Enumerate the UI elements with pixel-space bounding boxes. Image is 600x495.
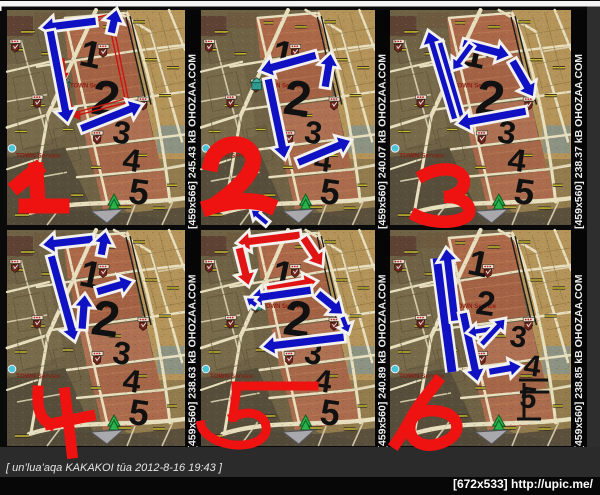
svg-text:[459x560] 238.85 kB OHOZAA.COM: [459x560] 238.85 kB OHOZAA.COM xyxy=(573,274,585,449)
svg-text:[459x560] 238.37 kB OHOZAA.COM: [459x560] 238.37 kB OHOZAA.COM xyxy=(573,54,585,229)
svg-text:[459x566] 245.43 kB OHOZAA.COM: [459x566] 245.43 kB OHOZAA.COM xyxy=(186,54,198,229)
svg-text:[459x560] 240.07 kB OHOZAA.COM: [459x560] 240.07 kB OHOZAA.COM xyxy=(376,54,388,229)
svg-text:[ un’lua’aqa KAKAKOI tūa 2012-: [ un’lua’aqa KAKAKOI tūa 2012-8-16 19:43… xyxy=(5,462,223,474)
svg-text:[672x533] http://upic.me/: [672x533] http://upic.me/ xyxy=(453,477,594,491)
svg-text:[459x560] 240.89 kB OHOZAA.COM: [459x560] 240.89 kB OHOZAA.COM xyxy=(376,274,388,449)
